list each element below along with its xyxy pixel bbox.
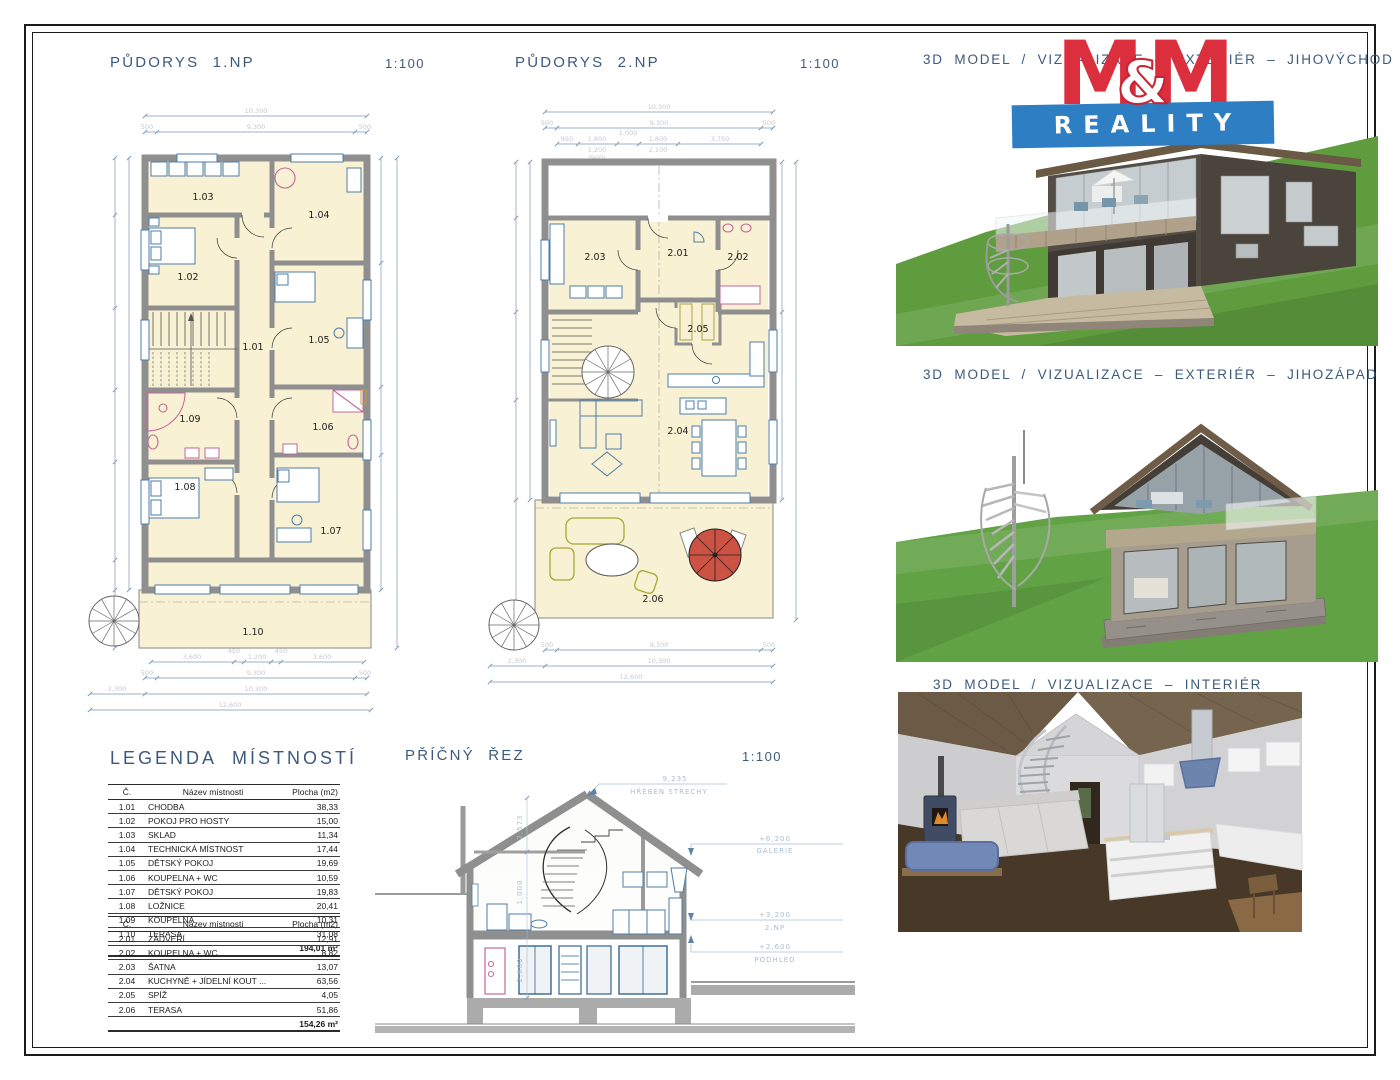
- svg-text:2.NP: 2.NP: [765, 924, 785, 932]
- plan2-title: PŮDORYS 2.NP: [515, 54, 660, 71]
- room-label: 2.03: [584, 252, 605, 263]
- svg-text:9,235: 9,235: [662, 775, 687, 783]
- room-label: 1.01: [242, 342, 263, 353]
- svg-text:500: 500: [763, 119, 775, 127]
- room-label: 2.02: [727, 252, 748, 263]
- svg-text:500: 500: [359, 669, 371, 677]
- svg-text:12,600: 12,600: [219, 701, 242, 709]
- table-row: 2.06TERASA51,86: [108, 1002, 340, 1016]
- section-title: PŘÍČNÝ ŘEZ: [405, 747, 525, 764]
- render3-title: 3D MODEL / VIZUALIZACE – INTERIÉR: [933, 677, 1262, 692]
- legend-table-2np: Č. Název místnosti Plocha (m2) 2.01ZÁDVE…: [108, 916, 340, 1032]
- logo-ampersand: &: [1117, 56, 1169, 111]
- room-label: 1.04: [308, 210, 329, 221]
- spiral-staircase-symbol: [489, 600, 539, 650]
- table-row: 1.02POKOJ PRO HOSTY15,00: [108, 814, 340, 828]
- room-label: 1.07: [320, 526, 341, 537]
- svg-text:10,300: 10,300: [245, 685, 268, 693]
- legend-total-2np: 154,26 m²: [280, 1017, 340, 1032]
- room-label: 1.08: [174, 482, 195, 493]
- room-label: 1.06: [312, 422, 333, 433]
- room-label: 2.05: [687, 324, 708, 335]
- svg-text:2,300: 2,300: [108, 685, 127, 693]
- svg-text:2,100: 2,100: [649, 146, 668, 154]
- table-row: 2.02KOUPELNA + WC8,82: [108, 946, 340, 960]
- legend-title: LEGENDA MÍSTNOSTÍ: [110, 748, 357, 769]
- legend-header-row: Č. Název místnosti Plocha (m2): [108, 917, 340, 932]
- plan2-dims-top: 10,300 500 9,300 500 950 1,800 1,000 1,8…: [541, 103, 775, 162]
- svg-text:2,600: 2,600: [516, 957, 524, 982]
- svg-text:500: 500: [763, 641, 775, 649]
- table-row: 2.04KUCHYNĚ + JÍDELNÍ KOUT ...63,56: [108, 974, 340, 988]
- spiral-staircase-symbol: [582, 346, 634, 398]
- svg-text:9,300: 9,300: [247, 669, 266, 677]
- table-row: 1.08LOŽNICE20,41: [108, 899, 340, 913]
- table-row: 1.01CHODBA38,33: [108, 800, 340, 814]
- svg-text:450: 450: [275, 647, 287, 655]
- section-scale: 1:100: [742, 749, 782, 764]
- svg-text:10,300: 10,300: [648, 657, 671, 665]
- room-label: 1.09: [179, 414, 200, 425]
- svg-text:9,300: 9,300: [247, 123, 266, 131]
- room-label: 1.02: [177, 272, 198, 283]
- table-row: 1.05DĚTSKÝ POKOJ19,69: [108, 856, 340, 870]
- svg-text:500: 500: [541, 119, 553, 127]
- table-row: 1.06KOUPELNA + WC10,59: [108, 870, 340, 884]
- table-row: 1.03SKLAD11,34: [108, 828, 340, 842]
- plan2-dims-bottom: 500 9,300 500 2,300 10,300 12,600: [488, 641, 775, 684]
- svg-text:2,573: 2,573: [516, 814, 524, 839]
- svg-text:HŘEBEN STŘECHY: HŘEBEN STŘECHY: [630, 787, 708, 796]
- svg-text:+2,600: +2,600: [759, 943, 791, 951]
- table-row: 2.01ZÁDVEŘÍ12,91: [108, 932, 340, 946]
- svg-text:1,000: 1,000: [619, 129, 638, 137]
- legend-header-row: Č. Název místnosti Plocha (m2): [108, 785, 340, 800]
- svg-text:500: 500: [359, 123, 371, 131]
- svg-text:10,300: 10,300: [648, 103, 671, 111]
- spiral-staircase-symbol: [89, 596, 139, 646]
- legend-total-row: 154,26 m²: [108, 1017, 340, 1032]
- parasol-symbol: [689, 529, 741, 581]
- svg-text:1,200: 1,200: [588, 146, 607, 154]
- svg-text:500: 500: [141, 123, 153, 131]
- svg-text:+3,200: +3,200: [759, 911, 791, 919]
- table-row: 1.07DĚTSKÝ POKOJ19,83: [108, 885, 340, 899]
- svg-text:950: 950: [561, 135, 573, 143]
- svg-text:9,300: 9,300: [650, 641, 669, 649]
- room-label: 1.10: [242, 627, 263, 638]
- svg-text:1,800: 1,800: [649, 135, 668, 143]
- svg-text:3,600: 3,600: [313, 653, 332, 661]
- table-row: 2.03ŠATNA13,07: [108, 960, 340, 974]
- room-label: 1.05: [308, 335, 329, 346]
- svg-text:+6,200: +6,200: [759, 835, 791, 843]
- svg-text:2,300: 2,300: [508, 657, 527, 665]
- svg-text:1,000: 1,000: [516, 879, 524, 904]
- section-dimensions: 2,573 1,000 2,600: [516, 796, 529, 1000]
- room-label: 1.03: [192, 192, 213, 203]
- svg-text:3,600: 3,600: [183, 653, 202, 661]
- table-row: 1.04TECHNICKÁ MÍSTNOST17,44: [108, 842, 340, 856]
- svg-text:500: 500: [141, 669, 153, 677]
- room-label: 2.04: [667, 426, 688, 437]
- svg-text:GALERIE: GALERIE: [757, 847, 794, 855]
- svg-text:450: 450: [228, 647, 240, 655]
- floor-plan-1np: 10,300 500 9,300 500: [85, 90, 425, 730]
- render-interior: [898, 692, 1302, 932]
- cross-section-drawing: 2,573 1,000 2,600 9,235 HŘEBEN STŘECHY +…: [375, 772, 855, 1048]
- room-label: 2.06: [642, 594, 663, 605]
- render3-scene: [898, 692, 1302, 932]
- svg-text:9,300: 9,300: [650, 119, 669, 127]
- mm-reality-logo: M & M REALITY: [1012, 34, 1274, 146]
- architectural-sheet: PŮDORYS 1.NP 1:100 PŮDORYS 2.NP 1:100 PŘ…: [0, 0, 1400, 1080]
- plan1-title: PŮDORYS 1.NP: [110, 54, 255, 71]
- plan1-scale: 1:100: [385, 56, 425, 71]
- render2-scene: [896, 428, 1378, 662]
- floor-plan-2np: 10,300 500 9,300 500 950 1,800 1,000 1,8…: [480, 90, 820, 730]
- plan1-dims-top: 10,300 500 9,300 500: [141, 107, 371, 134]
- render2-title: 3D MODEL / VIZUALIZACE – EXTERIÉR – JIHO…: [923, 367, 1378, 382]
- svg-text:10,300: 10,300: [245, 107, 268, 115]
- render-exterior-southwest: [896, 392, 1378, 662]
- table-row: 2.05SPÍŽ4,05: [108, 988, 340, 1002]
- plan2-scale: 1:100: [800, 56, 840, 71]
- room-label: 2.01: [667, 248, 688, 259]
- svg-text:1,800: 1,800: [588, 135, 607, 143]
- svg-text:PODHLED: PODHLED: [754, 956, 795, 964]
- render1-scene: [896, 136, 1378, 346]
- plan1-dims-bottom: 3,600 450 1,200 450 3,600 500 9,300 500 …: [88, 647, 373, 712]
- svg-text:3,750: 3,750: [711, 135, 730, 143]
- svg-text:1,200: 1,200: [248, 653, 267, 661]
- svg-text:500: 500: [541, 641, 553, 649]
- svg-text:12,600: 12,600: [620, 673, 643, 681]
